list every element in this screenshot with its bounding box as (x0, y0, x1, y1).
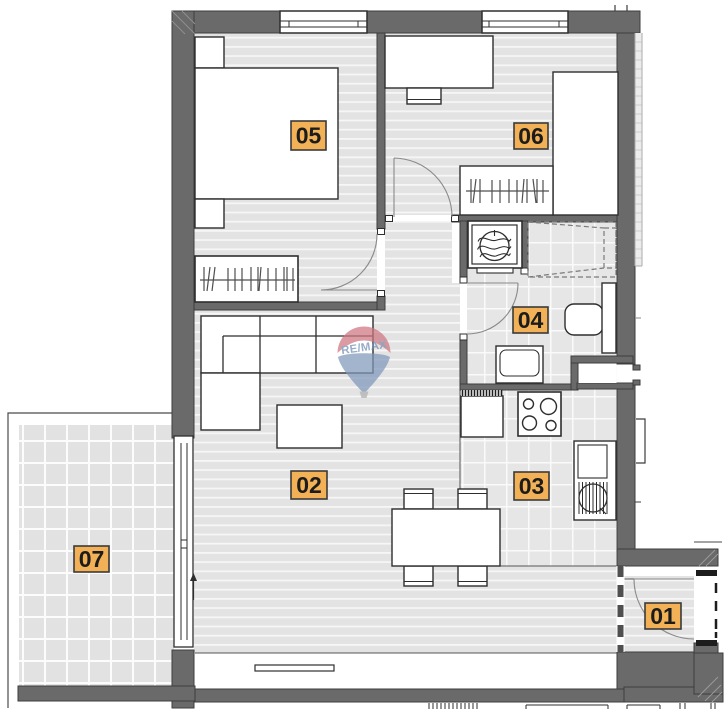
svg-text:02: 02 (296, 472, 322, 498)
svg-text:04: 04 (518, 307, 544, 333)
svg-text:05: 05 (296, 123, 322, 149)
svg-text:01: 01 (650, 603, 676, 629)
svg-text:06: 06 (518, 123, 544, 149)
svg-text:07: 07 (79, 546, 105, 572)
svg-text:03: 03 (519, 473, 545, 499)
